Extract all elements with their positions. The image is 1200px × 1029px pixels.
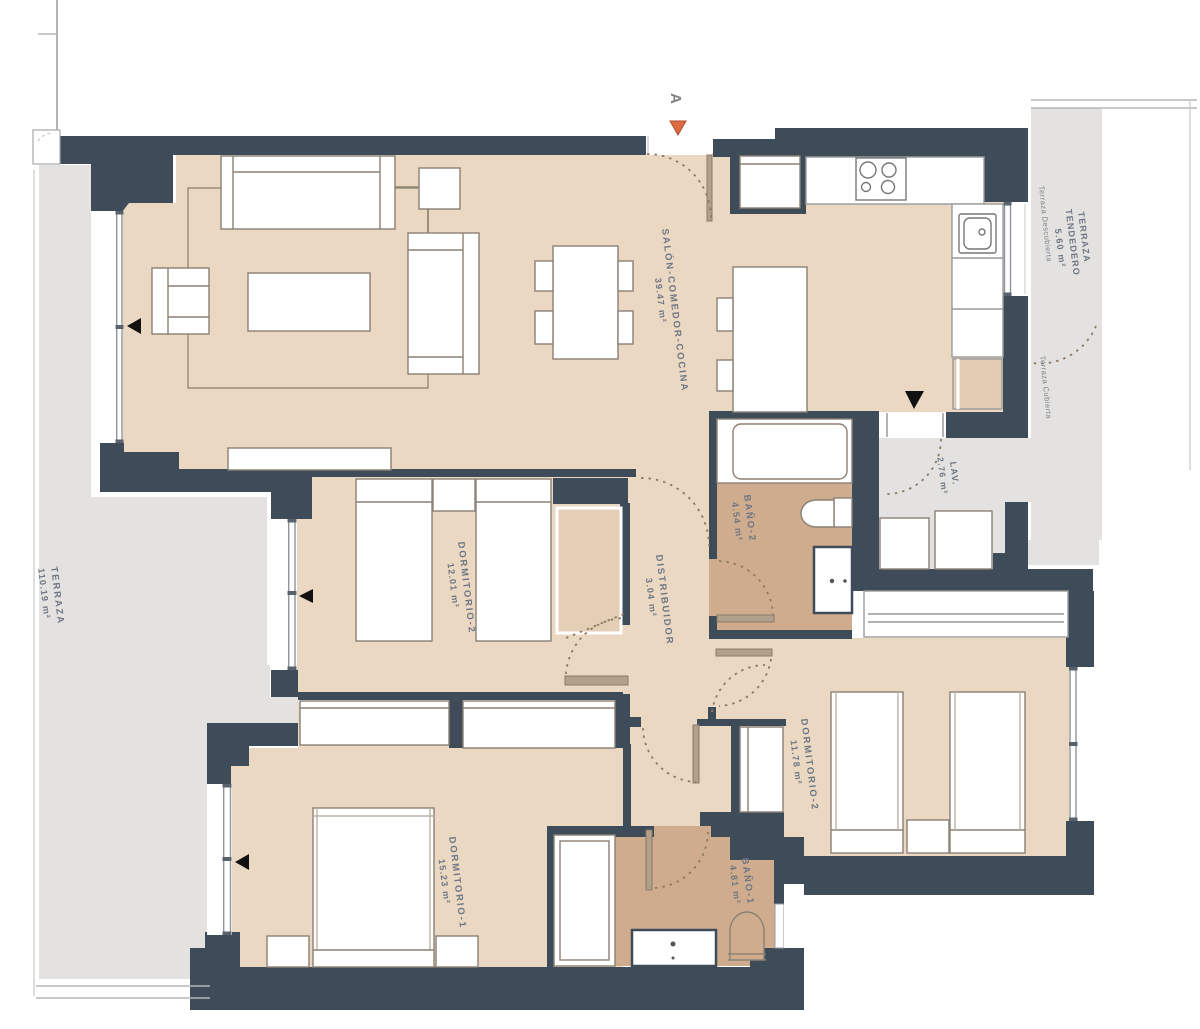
svg-text:A: A (667, 93, 684, 104)
